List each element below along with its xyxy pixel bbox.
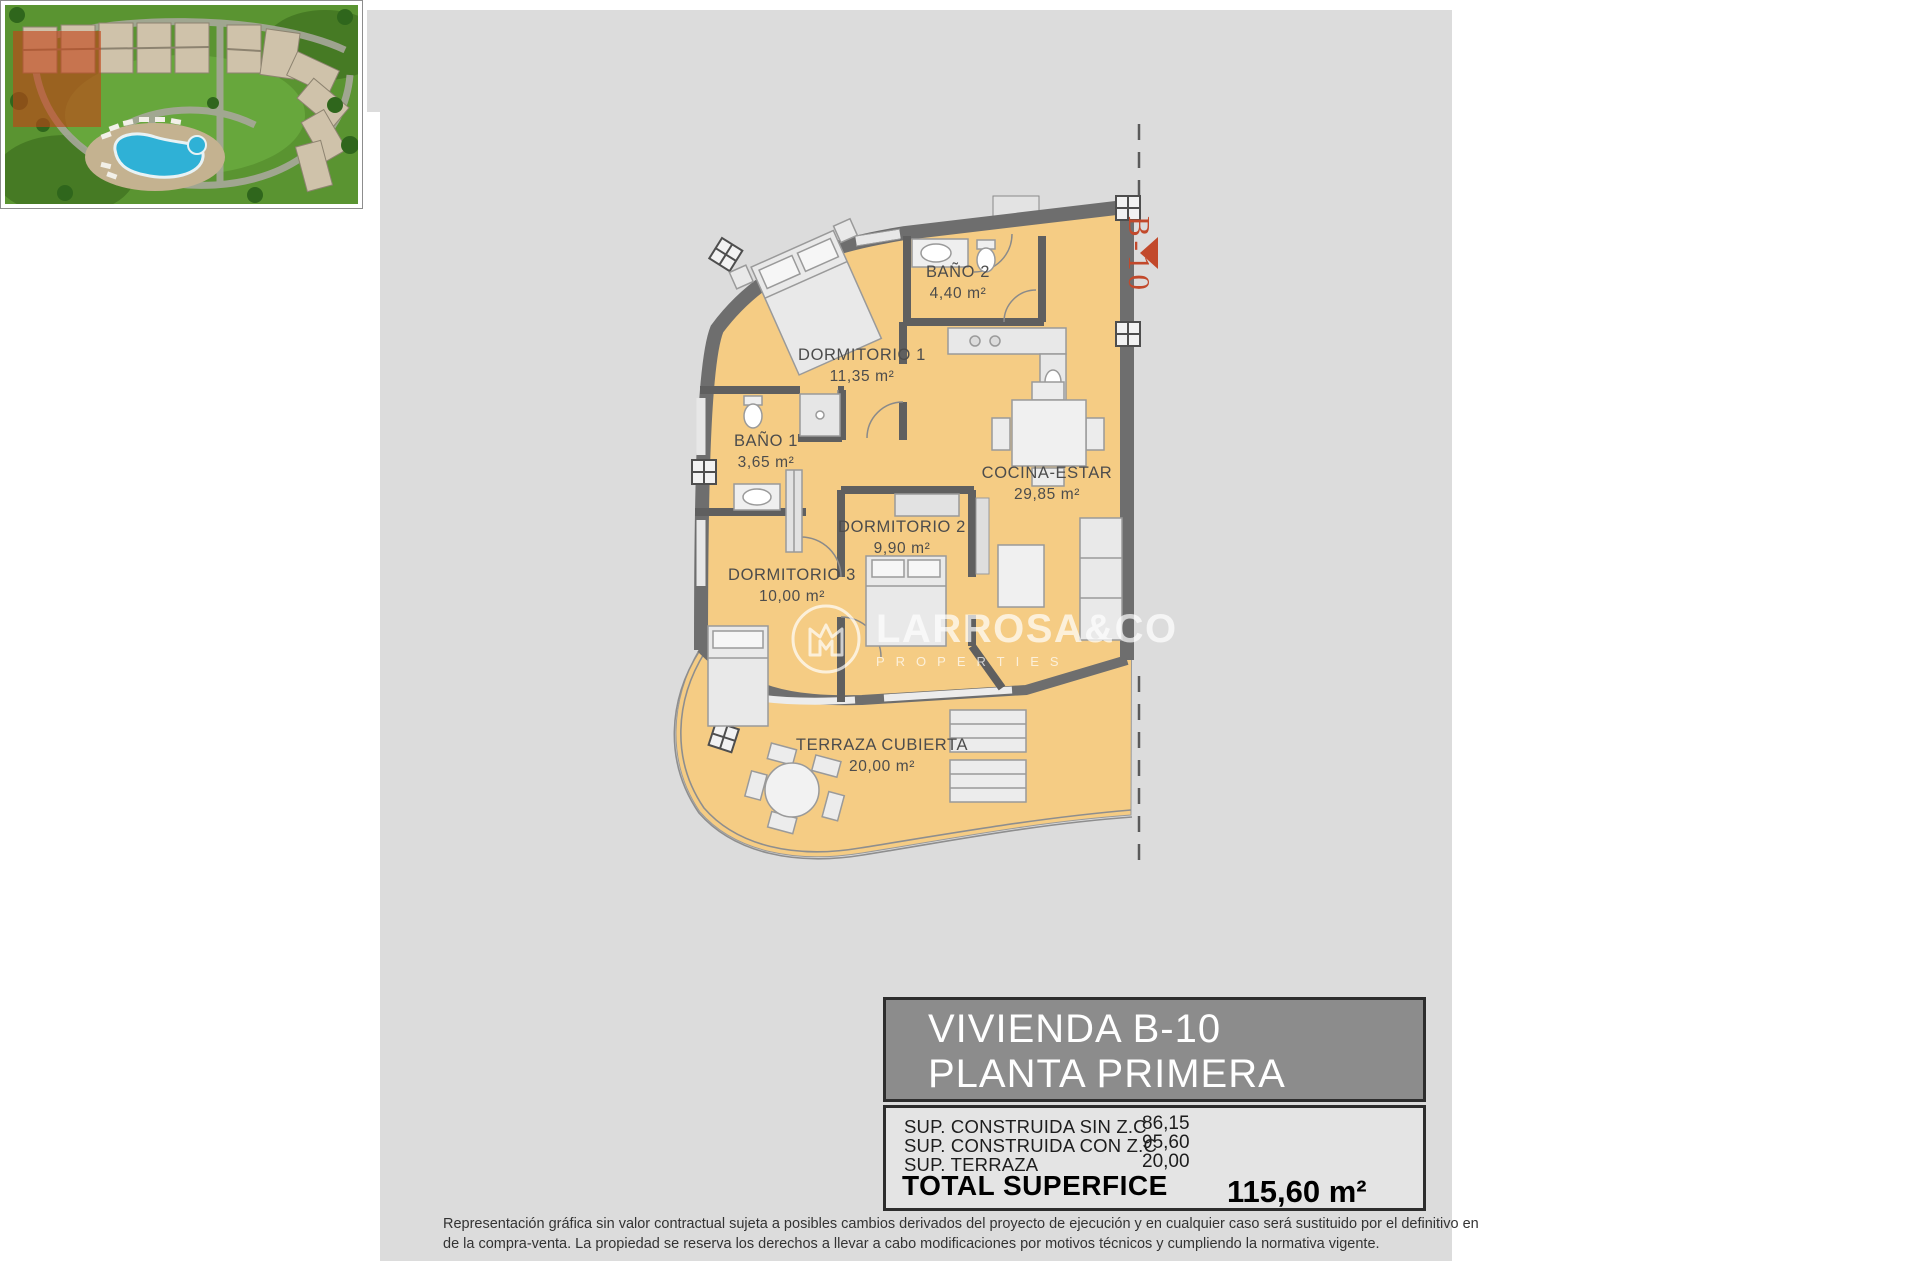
total-surface-label: TOTAL SUPERFICE <box>902 1170 1168 1202</box>
room-label-dormitorio3: DORMITORIO 3 10,00 m² <box>728 566 856 606</box>
room-area: 10,00 m² <box>728 588 856 606</box>
room-name: BAÑO 2 <box>926 263 990 282</box>
room-area: 9,90 m² <box>838 540 966 558</box>
unit-tag-label: B-10 <box>1121 216 1157 294</box>
room-area: 3,65 m² <box>734 454 798 472</box>
room-label-bano2: BAÑO 2 4,40 m² <box>926 263 990 303</box>
room-label-terraza: TERRAZA CUBIERTA 20,00 m² <box>796 736 968 776</box>
total-surface-value: 115,60 m² <box>1227 1174 1367 1210</box>
room-name: TERRAZA CUBIERTA <box>796 736 968 755</box>
surface-table: SUP. CONSTRUIDA SIN Z.C SUP. CONSTRUIDA … <box>883 1105 1426 1211</box>
room-name: BAÑO 1 <box>734 432 798 451</box>
room-label-cocina-estar: COCINA-ESTAR 29,85 m² <box>982 464 1113 504</box>
room-name: COCINA-ESTAR <box>982 464 1113 483</box>
room-area: 29,85 m² <box>982 486 1113 504</box>
legal-disclaimer: Representación gráfica sin valor contrac… <box>443 1214 1483 1255</box>
room-area: 20,00 m² <box>796 758 968 776</box>
room-area: 11,35 m² <box>798 368 926 386</box>
room-area: 4,40 m² <box>926 285 990 303</box>
room-name: DORMITORIO 1 <box>798 346 926 365</box>
room-name: DORMITORIO 3 <box>728 566 856 585</box>
disclaimer-line2: de la compra-venta. La propiedad se rese… <box>443 1234 1483 1254</box>
unit-info-panel: VIVIENDA B-10 PLANTA PRIMERA SUP. CONSTR… <box>883 997 1426 1211</box>
disclaimer-line1: Representación gráfica sin valor contrac… <box>443 1214 1483 1234</box>
unit-title-line2: PLANTA PRIMERA <box>928 1052 1423 1097</box>
unit-title-box: VIVIENDA B-10 PLANTA PRIMERA <box>883 997 1426 1102</box>
room-label-bano1: BAÑO 1 3,65 m² <box>734 432 798 472</box>
room-label-dormitorio2: DORMITORIO 2 9,90 m² <box>838 518 966 558</box>
unit-title-line1: VIVIENDA B-10 <box>928 1007 1423 1052</box>
room-label-dormitorio1: DORMITORIO 1 11,35 m² <box>798 346 926 386</box>
tv-unit <box>976 498 989 574</box>
room-name: DORMITORIO 2 <box>838 518 966 537</box>
